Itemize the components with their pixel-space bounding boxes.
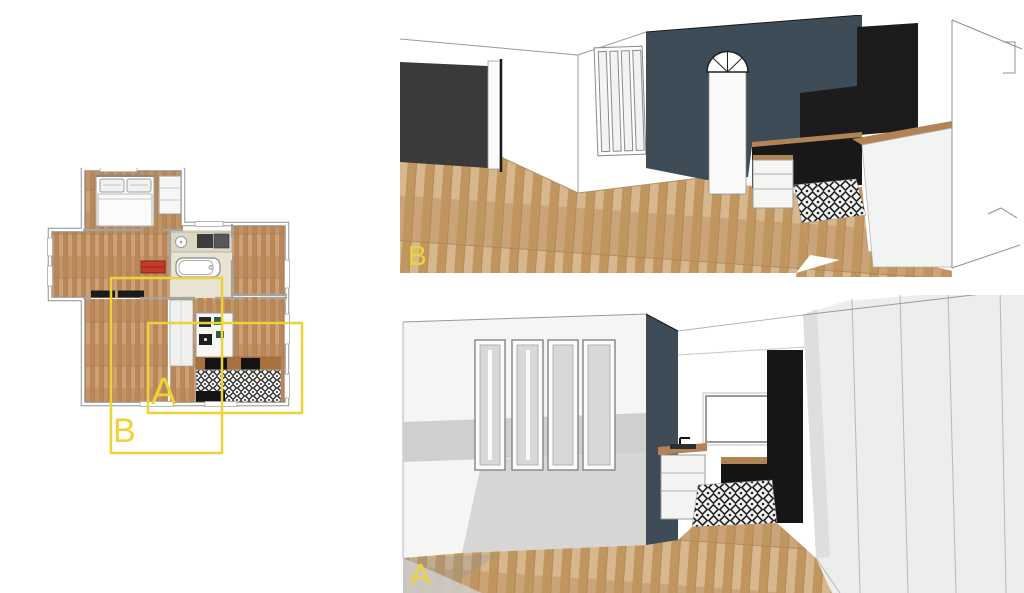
- render-view-a: A: [400, 295, 1024, 593]
- island-front: [862, 128, 952, 267]
- sink: [670, 444, 696, 449]
- left-room-floor: [50, 230, 140, 298]
- pocket-door: [488, 61, 500, 169]
- closet: [159, 176, 181, 214]
- view-a-label: A: [410, 557, 431, 592]
- appliance: [214, 234, 229, 248]
- plan-label-b: B: [113, 412, 136, 450]
- right-room-upper-floor: [232, 224, 287, 295]
- kitchen-nook: [658, 315, 805, 527]
- washing-machine: [197, 234, 213, 248]
- render-view-b: B: [400, 15, 1022, 280]
- wardrobe-strip: [118, 291, 144, 298]
- plan-label-a: A: [151, 371, 177, 413]
- red-radiator: [141, 261, 165, 273]
- drawer-unit: [753, 160, 793, 208]
- view-b-label: B: [408, 240, 427, 271]
- white-board: [706, 396, 769, 442]
- tile-floor: [794, 179, 866, 223]
- floor-plan: A B: [45, 168, 313, 460]
- wardrobe-panels: [803, 295, 1024, 593]
- arched-door: [707, 52, 748, 195]
- glass-partition-window: [594, 46, 646, 156]
- design-board: A B: [0, 0, 1024, 593]
- tile-floor: [692, 480, 777, 527]
- dark-doorway: [400, 62, 488, 168]
